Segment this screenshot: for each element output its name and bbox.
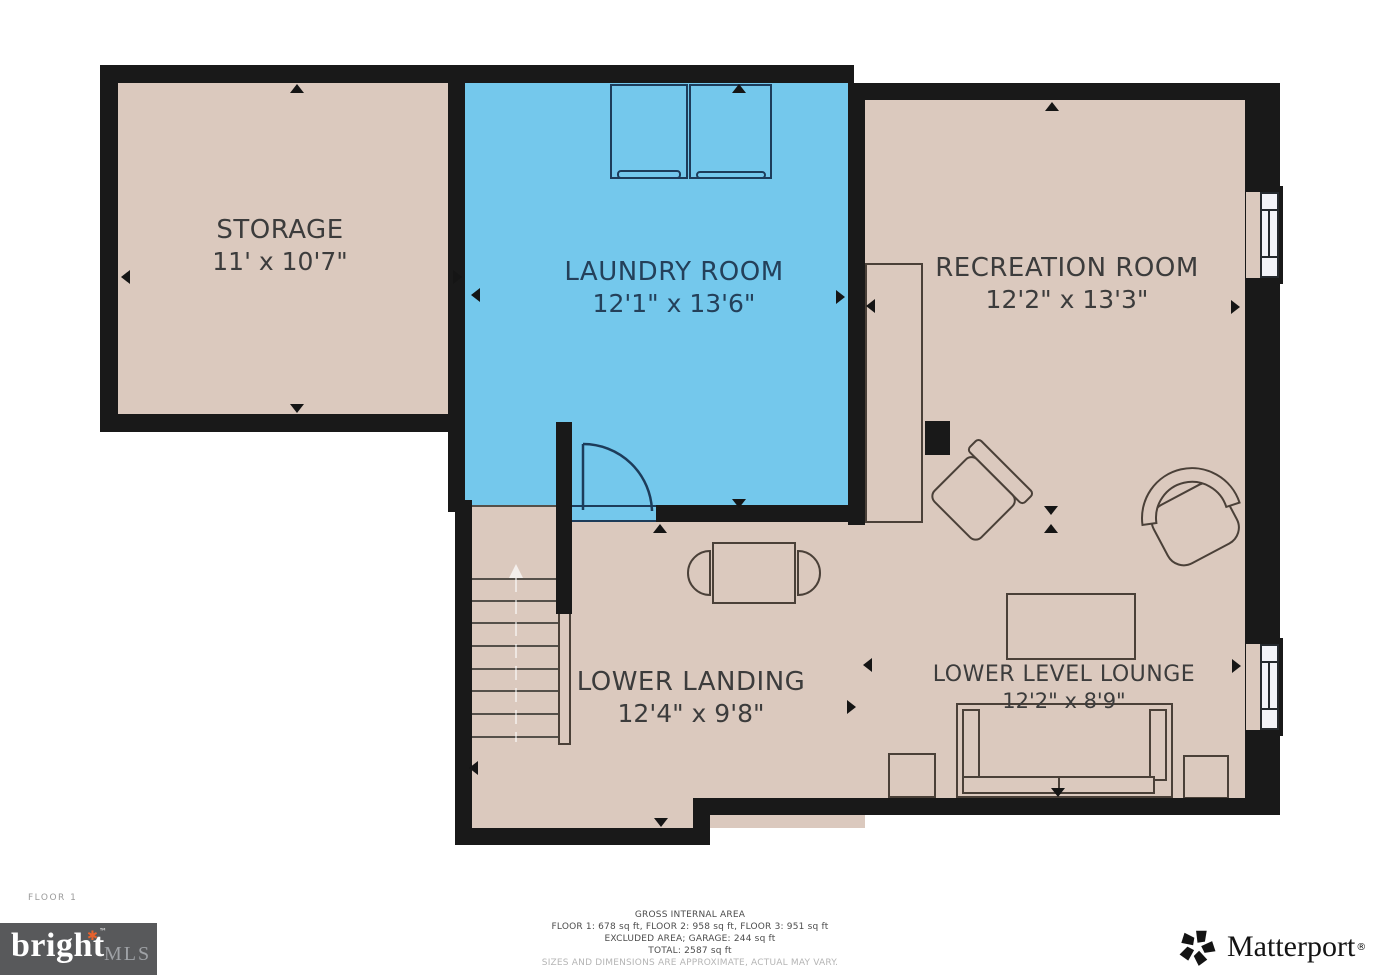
lounge-label: LOWER LEVEL LOUNGE 12'2" x 8'9": [933, 662, 1195, 715]
registered-symbol: ®: [1356, 942, 1366, 953]
door-swing: [583, 444, 652, 511]
room-dimensions: 11' x 10'7": [212, 246, 347, 278]
mls-text: MLS: [104, 943, 151, 966]
bright-mls-logo: bright ✱ ™ MLS: [0, 923, 157, 975]
landing-dim-arrow-left-icon: [469, 761, 478, 775]
room-name: LAUNDRY ROOM: [564, 256, 783, 288]
matterport-logo: Matterport ®: [1176, 926, 1366, 968]
storage-dim-arrow-right-icon: [453, 270, 462, 284]
lounge-dim-arrow-up-icon: [1044, 524, 1058, 533]
matterport-wordmark: Matterport: [1227, 930, 1355, 964]
lounge-dim-arrow-left-icon: [863, 658, 872, 672]
recreation-dim-arrow-up-icon: [1045, 102, 1059, 111]
gross-area-title: GROSS INTERNAL AREA: [450, 909, 930, 921]
room-name: LOWER LEVEL LOUNGE: [933, 662, 1195, 688]
recreation-dim-arrow-left-icon: [866, 299, 875, 313]
landing-dim-arrow-up-icon: [653, 524, 667, 533]
recreation-armchair: [925, 438, 1034, 547]
room-dimensions: 12'4" x 9'8": [577, 698, 806, 730]
room-name: STORAGE: [212, 214, 347, 246]
landing-chair-left: [688, 551, 710, 595]
landing-dim-arrow-right-icon: [847, 700, 856, 714]
room-dimensions: 12'2" x 13'3": [935, 284, 1199, 316]
lounge-dim-arrow-down-icon: [1051, 788, 1065, 797]
recreation-curved-chair: [1127, 451, 1255, 576]
bright-mls-star-icon: ✱: [87, 929, 98, 944]
landing-label: LOWER LANDING 12'4" x 9'8": [577, 666, 806, 730]
recreation-dim-arrow-down-icon: [1044, 506, 1058, 515]
floor-areas: FLOOR 1: 678 sq ft, FLOOR 2: 958 sq ft, …: [450, 921, 930, 933]
trademark-symbol: ™: [99, 927, 107, 936]
room-dimensions: 12'1" x 13'6": [564, 288, 783, 320]
laundry-dim-arrow-left-icon: [471, 288, 480, 302]
room-name: LOWER LANDING: [577, 666, 806, 698]
recreation-dim-arrow-right-icon: [1231, 300, 1240, 314]
floor-plan-page: STORAGE 11' x 10'7" LAUNDRY ROOM 12'1" x…: [0, 0, 1386, 975]
plan-curves-overlay: [0, 0, 1386, 975]
room-dimensions: 12'2" x 8'9": [933, 688, 1195, 715]
landing-dim-arrow-down-icon: [654, 818, 668, 827]
landing-chair-right: [798, 551, 820, 595]
laundry-dim-arrow-down-icon: [732, 499, 746, 508]
laundry-dim-arrow-up-icon: [732, 84, 746, 93]
laundry-label: LAUNDRY ROOM 12'1" x 13'6": [564, 256, 783, 320]
storage-label: STORAGE 11' x 10'7": [212, 214, 347, 278]
lounge-dim-arrow-right-icon: [1232, 659, 1241, 673]
stair-walkline: [509, 564, 523, 742]
laundry-dim-arrow-right-icon: [836, 290, 845, 304]
floor-selector-label: FLOOR 1: [28, 893, 77, 903]
excluded-area: EXCLUDED AREA; GARAGE: 244 sq ft: [450, 933, 930, 945]
room-name: RECREATION ROOM: [935, 252, 1199, 284]
storage-dim-arrow-left-icon: [121, 270, 130, 284]
matterport-pinwheel-icon: [1176, 926, 1218, 968]
storage-dim-arrow-up-icon: [290, 84, 304, 93]
area-summary: GROSS INTERNAL AREA FLOOR 1: 678 sq ft, …: [450, 909, 930, 969]
disclaimer: SIZES AND DIMENSIONS ARE APPROXIMATE, AC…: [450, 957, 930, 969]
total-area: TOTAL: 2587 sq ft: [450, 945, 930, 957]
recreation-label: RECREATION ROOM 12'2" x 13'3": [935, 252, 1199, 316]
storage-dim-arrow-down-icon: [290, 404, 304, 413]
